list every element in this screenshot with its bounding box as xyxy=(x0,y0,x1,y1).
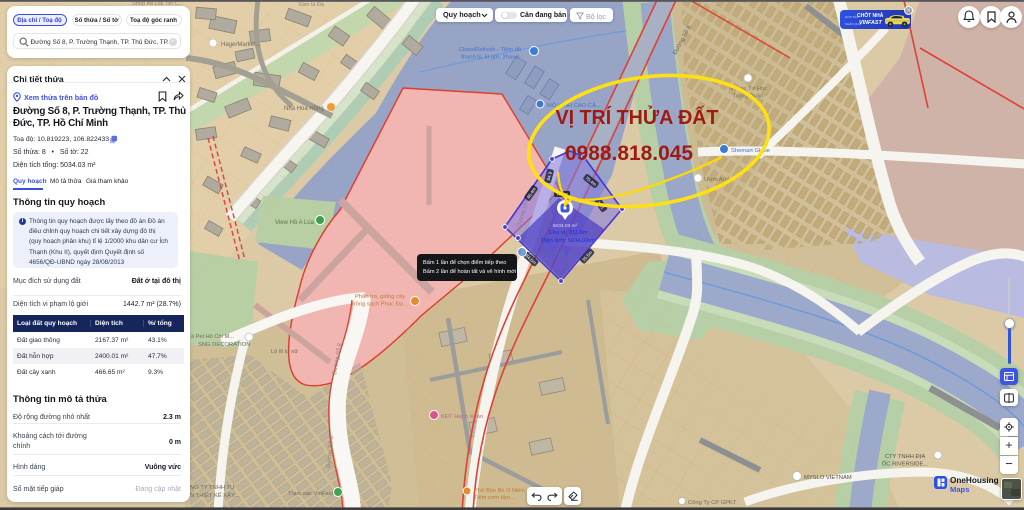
svg-text:5034.03 m²: 5034.03 m² xyxy=(553,223,578,229)
svg-text:0988.818.045: 0988.818.045 xyxy=(565,141,693,165)
svg-text:Diện tích: 5034.03m²: Diện tích: 5034.03m² xyxy=(541,237,595,244)
svg-text:View Hồ A Lúa: View Hồ A Lúa xyxy=(275,220,315,226)
svg-text:à Pet Hồ Chí M...: à Pet Hồ Chí M... xyxy=(191,334,234,340)
svg-text:Phân tro, giống cây: Phân tro, giống cây xyxy=(355,294,405,300)
svg-text:thanh lý, kí gửi, 2hand: thanh lý, kí gửi, 2hand xyxy=(461,54,518,61)
svg-text:KĐT Hạnh Xuân: KĐT Hạnh Xuân xyxy=(441,414,483,420)
svg-text:N THIẾT KẾ XÂY...: N THIẾT KẾ XÂY... xyxy=(190,492,239,499)
svg-text:Lô lô lư nữ: Lô lô lư nữ xyxy=(271,349,298,355)
svg-text:HagerMarket...: HagerMarket... xyxy=(221,42,261,48)
svg-text:MYSLO VIETNAM: MYSLO VIETNAM xyxy=(804,475,852,481)
svg-text:ỐC RIVERSIDE...: ỐC RIVERSIDE... xyxy=(882,461,929,468)
svg-text:Nhà Hoa Hồng: Nhà Hoa Hồng xyxy=(284,106,324,112)
svg-text:Xóm là Đà: Xóm là Đà xyxy=(298,2,325,8)
svg-text:SNG DECORATION: SNG DECORATION xyxy=(198,342,250,348)
svg-text:Phở Bún Bò O Niêm: Phở Bún Bò O Niêm xyxy=(474,487,525,494)
svg-text:VỊ TRÍ THỬA ĐẤT: VỊ TRÍ THỬA ĐẤT xyxy=(556,105,719,129)
svg-text:trồng sạch Phúc Đạ...: trồng sạch Phúc Đạ... xyxy=(352,302,408,308)
svg-text:Công Ty CP GPKT: Công Ty CP GPKT xyxy=(688,500,737,506)
svg-text:CTY TNHH ĐỊA: CTY TNHH ĐỊA xyxy=(885,454,926,460)
svg-text:ClosetRefresh - Tiệm đồ: ClosetRefresh - Tiệm đồ xyxy=(459,47,522,53)
svg-text:Tiệm cơm tấm...: Tiệm cơm tấm... xyxy=(474,495,515,501)
svg-text:Trạm sạc VinFast: Trạm sạc VinFast xyxy=(288,491,333,497)
svg-text:NG TY TNHH TƯ: NG TY TNHH TƯ xyxy=(190,485,235,491)
svg-text:Chu vi: 311.8m: Chu vi: 311.8m xyxy=(548,230,587,236)
svg-text:Bưu Gia Hoà: Bưu Gia Hoà xyxy=(529,251,564,257)
